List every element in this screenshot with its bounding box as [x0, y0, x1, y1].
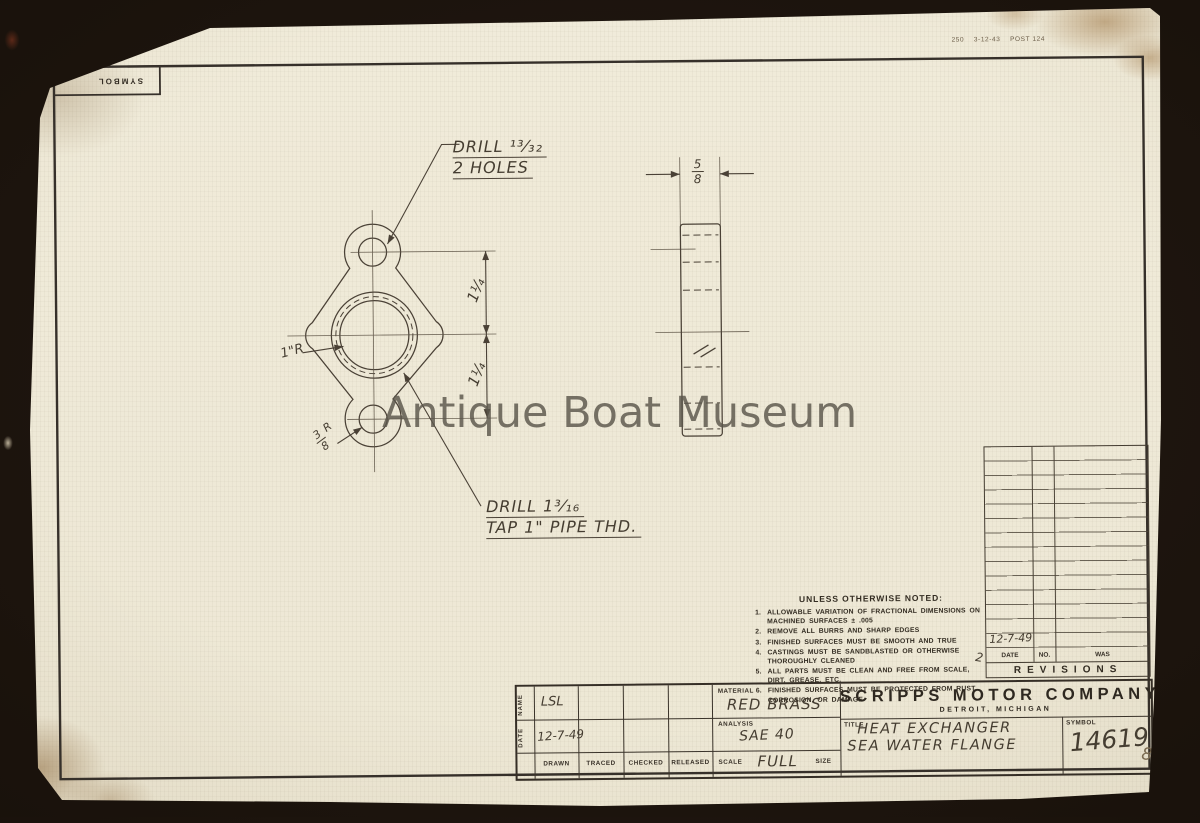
title-block: NAME DATE LSL 12-7-49 DRAWN TRACED CHECK…: [515, 679, 1154, 781]
dim-thickness-5-8: 58: [692, 157, 704, 185]
revisions-header-date: DATE: [986, 652, 1033, 659]
date-row-label: DATE: [518, 726, 533, 750]
scale-value: FULL: [757, 752, 797, 770]
revisions-table: 12-7-49 DATE NO. WAS REVISIONS: [983, 445, 1150, 679]
note-item: 4.CASTINGS MUST BE SANDBLASTED OR OTHERW…: [755, 646, 987, 667]
notes-heading: UNLESS OTHERWISE NOTED:: [755, 592, 987, 604]
callout-line: TAP 1" PIPE THD.: [486, 517, 641, 539]
analysis-label: ANALYSIS: [718, 721, 753, 728]
drawing-title-line2: SEA WATER FLANGE: [847, 737, 1017, 755]
col-header-checked: CHECKED: [623, 759, 668, 766]
page-number: 8: [1140, 744, 1153, 765]
size-label: SIZE: [815, 758, 831, 765]
symbol-box-label: SYMBOL: [85, 76, 155, 86]
scale-label: SCALE: [718, 759, 742, 766]
revisions-title: REVISIONS: [987, 661, 1150, 681]
revisions-header-no: NO.: [1033, 652, 1055, 659]
note-item: 1.ALLOWABLE VARIATION OF FRACTIONAL DIME…: [755, 606, 987, 627]
grid-line: [840, 716, 1151, 720]
dimension-lines: [301, 142, 757, 508]
callout-line: 2 HOLES: [453, 158, 533, 180]
callout-line: DRILL ¹³⁄₃₂: [452, 136, 547, 158]
grid-line: [1062, 717, 1064, 774]
revision-entry-date: 12-7-49: [989, 631, 1032, 646]
drawn-by-initials: LSL: [541, 694, 564, 709]
fraction-numerator: 5: [692, 158, 704, 172]
revisions-empty-rows: [984, 446, 1149, 649]
drawing-number: 14619: [1066, 722, 1152, 758]
material-label: MATERIAL: [718, 688, 754, 695]
drawing-title-line1: HEAT EXCHANGER: [857, 720, 1012, 737]
callout-drill-tap: DRILL 1³⁄₁₆ TAP 1" PIPE THD.: [486, 496, 641, 539]
col-header-drawn: DRAWN: [534, 760, 578, 767]
callout-drill-bolt-holes: DRILL ¹³⁄₃₂ 2 HOLES: [452, 136, 547, 179]
revisions-header-was: WAS: [1055, 651, 1149, 659]
name-row-label: NAME: [518, 693, 533, 717]
analysis-value: SAE 40: [739, 726, 795, 744]
watermark: Antique Boat Museum: [382, 388, 857, 438]
revisions-header-row: DATE NO. WAS: [986, 647, 1149, 663]
material-value: RED BRASS: [727, 695, 822, 714]
drawn-date: 12-7-49: [537, 727, 585, 744]
col-header-released: RELEASED: [668, 759, 712, 766]
company-name: SCRIPPS MOTOR COMPANY: [840, 685, 1151, 707]
callout-line: DRILL 1³⁄₁₆: [486, 496, 584, 518]
col-header-traced: TRACED: [578, 760, 623, 767]
scanned-blueprint: { "meta": { "print_info": "250 3-12-43 P…: [0, 0, 1200, 817]
fraction-denominator: 8: [694, 172, 702, 185]
grid-line: [517, 717, 840, 721]
